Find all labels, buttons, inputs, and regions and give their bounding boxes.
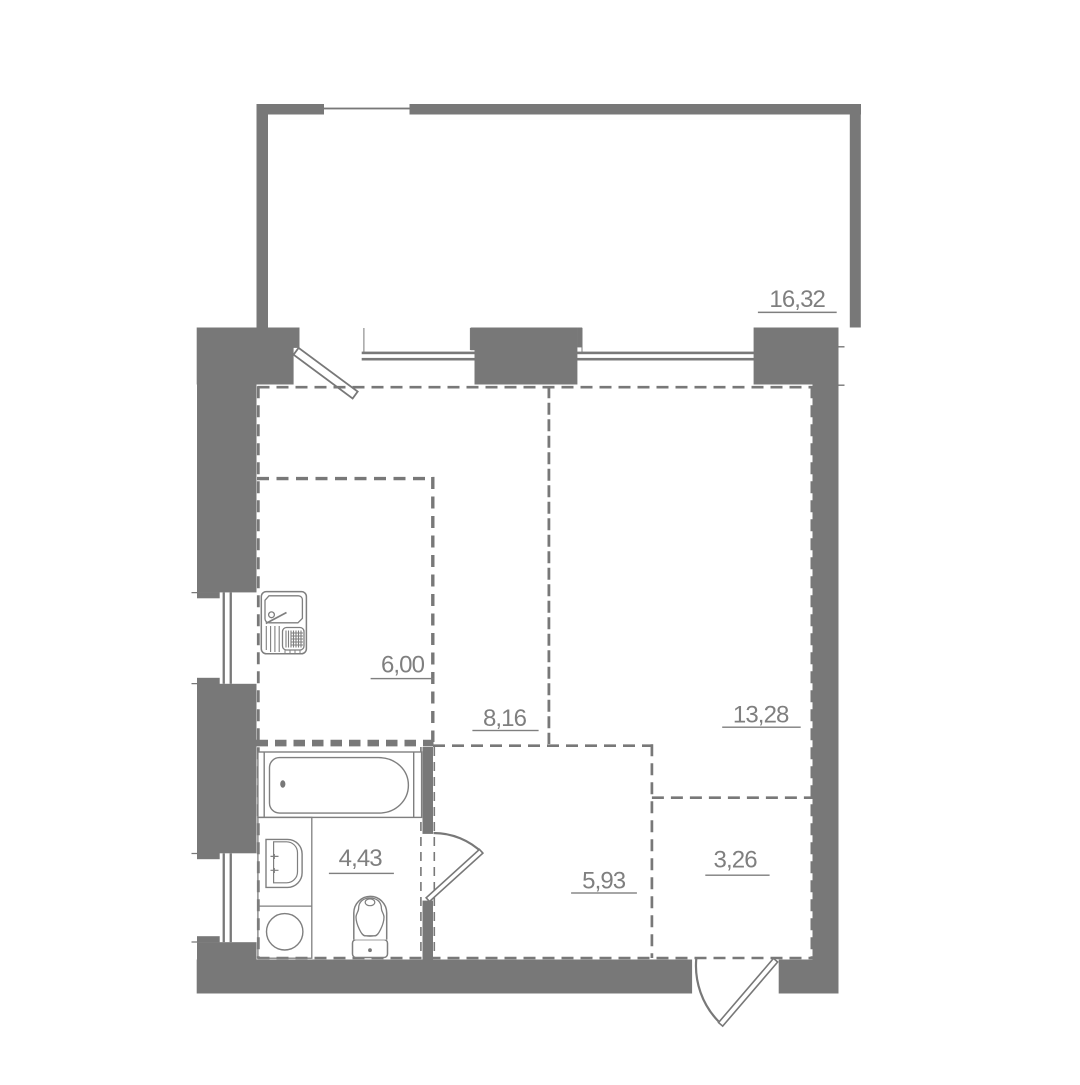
svg-text:13,28: 13,28 bbox=[733, 701, 789, 728]
svg-text:3,26: 3,26 bbox=[714, 846, 758, 873]
svg-text:6,00: 6,00 bbox=[381, 652, 425, 679]
svg-text:16,32: 16,32 bbox=[769, 286, 825, 313]
svg-text:8,16: 8,16 bbox=[483, 705, 527, 732]
svg-text:4,43: 4,43 bbox=[339, 845, 383, 872]
svg-text:5,93: 5,93 bbox=[582, 867, 626, 894]
